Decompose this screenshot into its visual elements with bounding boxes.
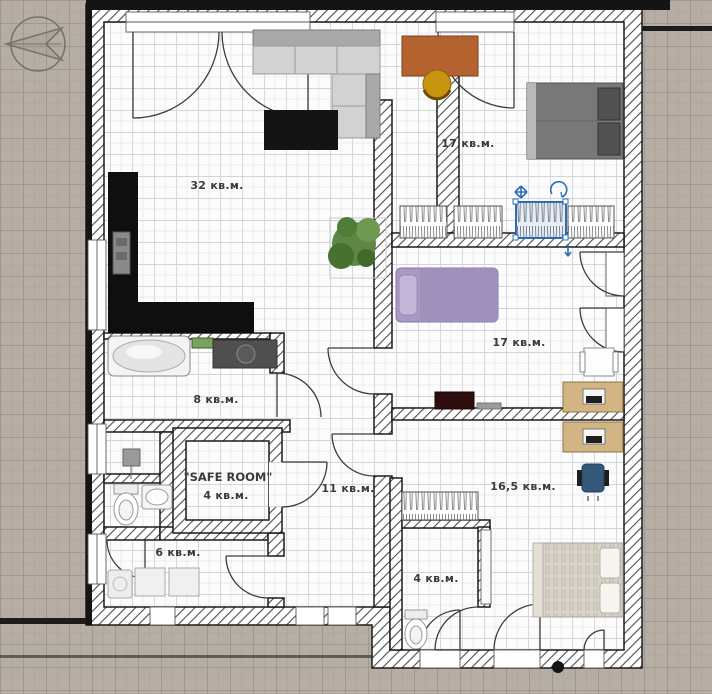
site-line-top-right [642, 26, 712, 31]
top-wall-bar [86, 0, 670, 10]
sink-wc[interactable] [142, 485, 172, 509]
single-bed-purple[interactable] [396, 268, 498, 322]
balcony-door-gap-1[interactable] [606, 252, 624, 296]
hall-exit-gap-1[interactable] [296, 607, 324, 625]
utility-exit-gap[interactable] [150, 607, 175, 625]
double-bed-striped[interactable] [533, 543, 623, 617]
bottom-door-gap-1[interactable] [420, 650, 460, 668]
label-wc-bottom: 4 кв.м. [413, 572, 458, 585]
hall-exit-gap-2[interactable] [328, 607, 356, 625]
label-safe-room-area: 4 кв.м. [203, 489, 248, 502]
chair-amber[interactable] [423, 70, 451, 99]
label-bedroom3: 16,5 кв.м. [490, 480, 556, 493]
site-line-bottom [0, 655, 372, 658]
desk-with-computer-1[interactable] [563, 382, 623, 412]
label-bedroom2: 17 кв.м. [492, 336, 545, 349]
safe-room-door-gap [269, 462, 283, 507]
bottom-door-gap-2[interactable] [494, 650, 540, 668]
shower-tray[interactable] [108, 570, 132, 598]
sliding-mirror-door[interactable] [481, 530, 491, 604]
bathtub[interactable] [108, 336, 190, 376]
tv-shelf[interactable] [477, 403, 501, 409]
tv-wall-mounted[interactable] [435, 392, 474, 409]
label-utility: 6 кв.м. [155, 546, 200, 559]
label-bathroom: 8 кв.м. [193, 393, 238, 406]
tv-stand[interactable] [264, 110, 338, 150]
doorbell-mark [552, 661, 564, 673]
balcony-door-gap-2[interactable] [606, 308, 624, 352]
label-hall: 11 кв.м. [321, 482, 374, 495]
wardrobe-bottom[interactable] [402, 492, 478, 520]
toilet-bottom[interactable] [405, 610, 427, 649]
washer-2[interactable] [169, 568, 199, 596]
label-safe-room-name: "SAFE ROOM" [184, 470, 273, 484]
vanity-sink[interactable] [213, 340, 277, 368]
bottom-door-gap-3[interactable] [584, 650, 604, 668]
toilet-wc[interactable] [114, 484, 138, 525]
label-living: 32 кв.м. [190, 179, 243, 192]
bathroom-shelf[interactable] [192, 338, 213, 348]
floor-plan-canvas: 32 кв.м. 17 кв.м. 17 кв.м. 8 кв.м. "SAFE… [0, 0, 712, 694]
double-bed-gray[interactable] [527, 83, 623, 159]
desk-with-computer-2[interactable] [563, 422, 623, 452]
label-bedroom1: 17 кв.м. [441, 137, 494, 150]
chair-with-table[interactable] [580, 348, 618, 376]
washer-1[interactable] [135, 568, 165, 596]
